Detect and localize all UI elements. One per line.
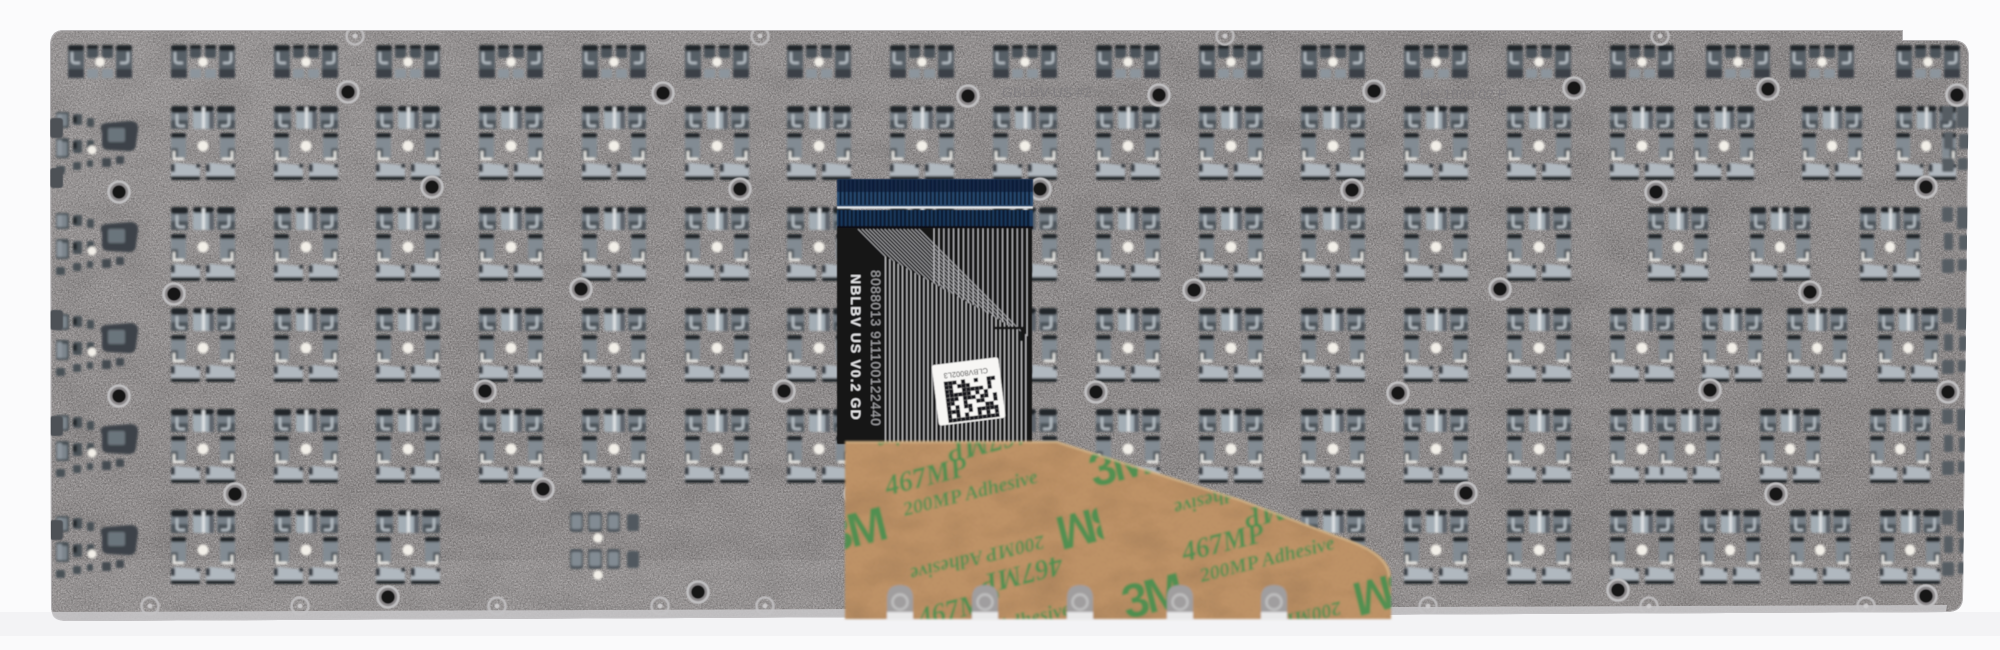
svg-text:GBLBV-US #2: GBLBV-US #2 [1002,84,1092,100]
svg-text:HS 1800 02 P: HS 1800 02 P [1420,86,1507,102]
svg-text:NBLBV US V0.2 GD: NBLBV US V0.2 GD [848,274,864,421]
svg-text:8088013 911100122440: 8088013 911100122440 [868,270,883,426]
